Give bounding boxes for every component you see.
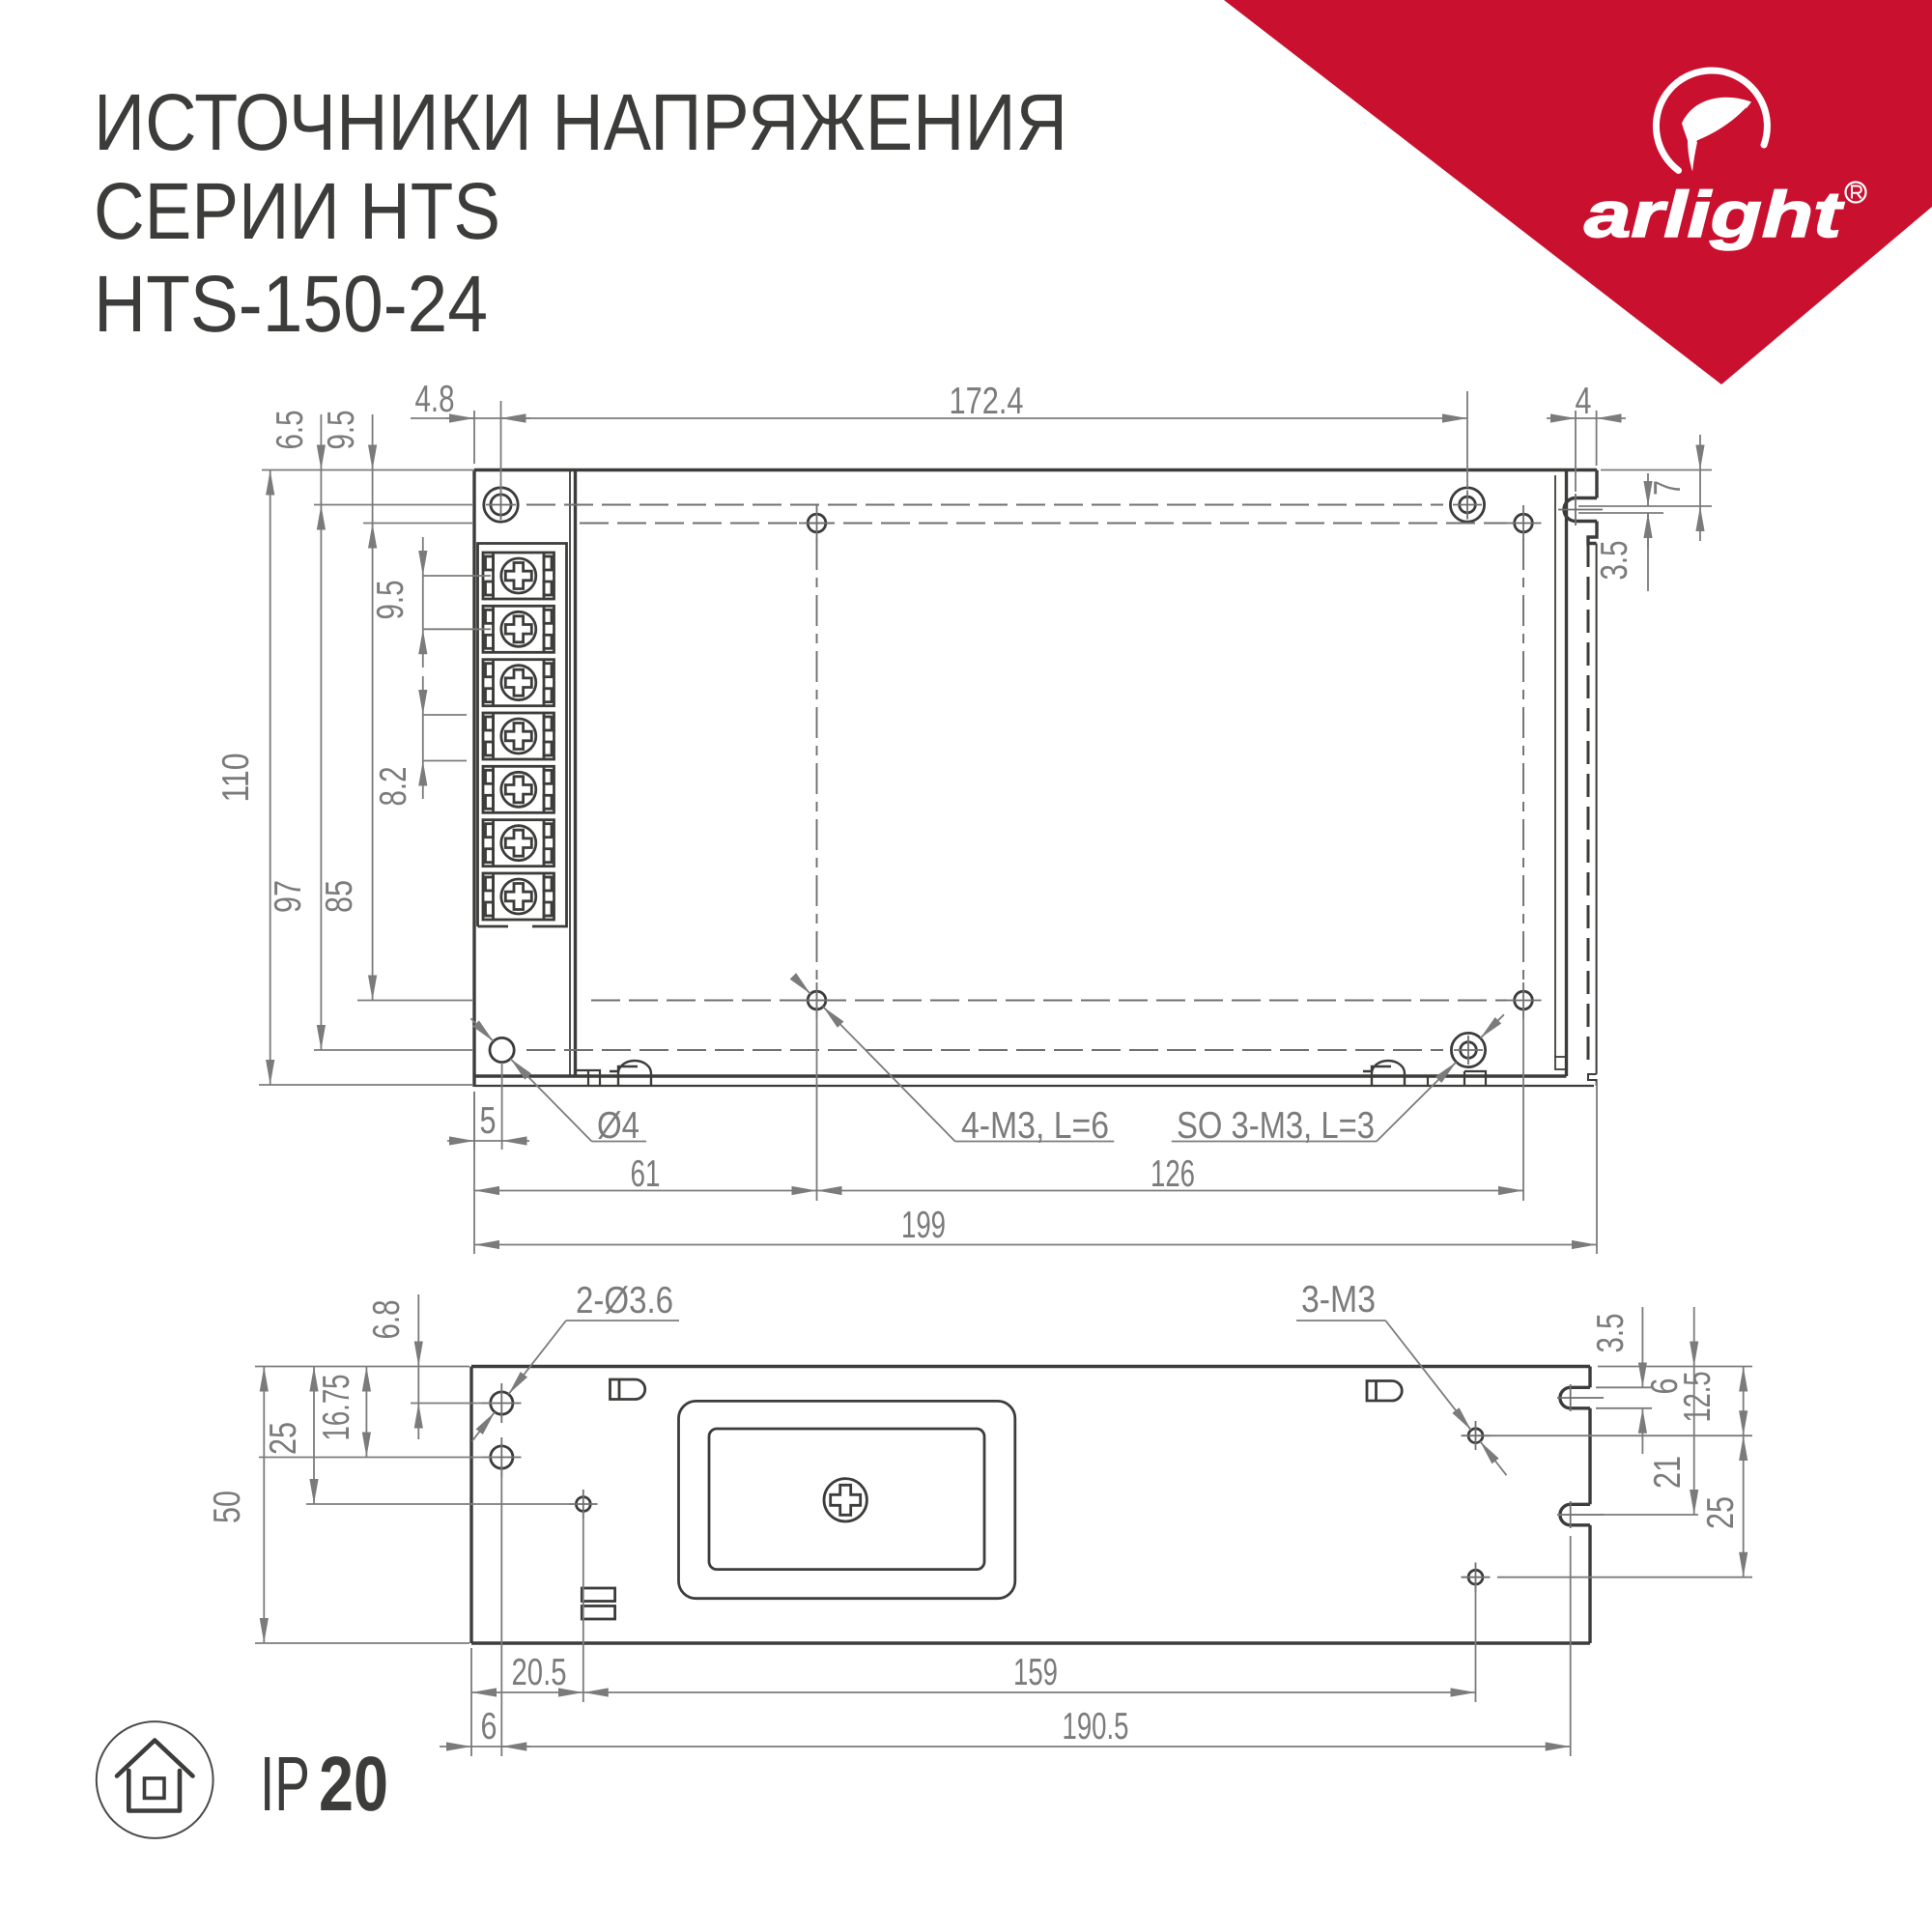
svg-text:3.5: 3.5: [1590, 1314, 1632, 1353]
svg-text:7: 7: [1647, 480, 1689, 496]
svg-text:6.5: 6.5: [270, 411, 311, 450]
svg-text:25: 25: [263, 1422, 304, 1455]
svg-text:159: 159: [1013, 1652, 1058, 1693]
svg-text:20.5: 20.5: [512, 1652, 567, 1693]
svg-text:85: 85: [319, 880, 360, 913]
svg-text:199: 199: [901, 1205, 946, 1246]
svg-text:3-M3: 3-M3: [1301, 1279, 1376, 1321]
svg-text:5: 5: [480, 1100, 497, 1142]
svg-text:arlight: arlight: [1584, 179, 1844, 251]
svg-text:4.8: 4.8: [415, 379, 455, 420]
svg-text:110: 110: [215, 753, 257, 803]
svg-text:21: 21: [1647, 1456, 1689, 1489]
svg-text:12.5: 12.5: [1677, 1372, 1719, 1423]
svg-text:ИСТОЧНИКИ НАПРЯЖЕНИЯ: ИСТОЧНИКИ НАПРЯЖЕНИЯ: [94, 77, 1067, 167]
svg-text:25: 25: [1700, 1496, 1742, 1529]
svg-text:4-M3, L=6: 4-M3, L=6: [961, 1105, 1109, 1147]
svg-text:9.5: 9.5: [321, 411, 362, 450]
svg-text:6: 6: [481, 1706, 497, 1747]
svg-text:SO 3-M3, L=3: SO 3-M3, L=3: [1177, 1105, 1375, 1147]
svg-text:HTS-150-24: HTS-150-24: [94, 259, 488, 349]
svg-text:6.8: 6.8: [366, 1300, 408, 1340]
svg-text:СЕРИИ HTS: СЕРИИ HTS: [94, 166, 500, 256]
svg-text:172.4: 172.4: [950, 381, 1024, 422]
svg-text:IP: IP: [260, 1741, 310, 1827]
svg-text:Ø4: Ø4: [597, 1105, 639, 1147]
svg-text:16.75: 16.75: [316, 1375, 357, 1441]
svg-text:50: 50: [207, 1491, 248, 1523]
svg-text:126: 126: [1151, 1153, 1195, 1195]
svg-text:20: 20: [319, 1741, 388, 1827]
svg-text:2-Ø3.6: 2-Ø3.6: [576, 1280, 673, 1321]
svg-text:61: 61: [631, 1153, 661, 1195]
svg-text:9.5: 9.5: [370, 581, 412, 620]
svg-text:190.5: 190.5: [1063, 1706, 1129, 1747]
svg-text:4: 4: [1576, 381, 1592, 422]
svg-text:97: 97: [268, 880, 309, 913]
svg-text:3.5: 3.5: [1594, 541, 1635, 581]
svg-text:8.2: 8.2: [373, 767, 414, 807]
